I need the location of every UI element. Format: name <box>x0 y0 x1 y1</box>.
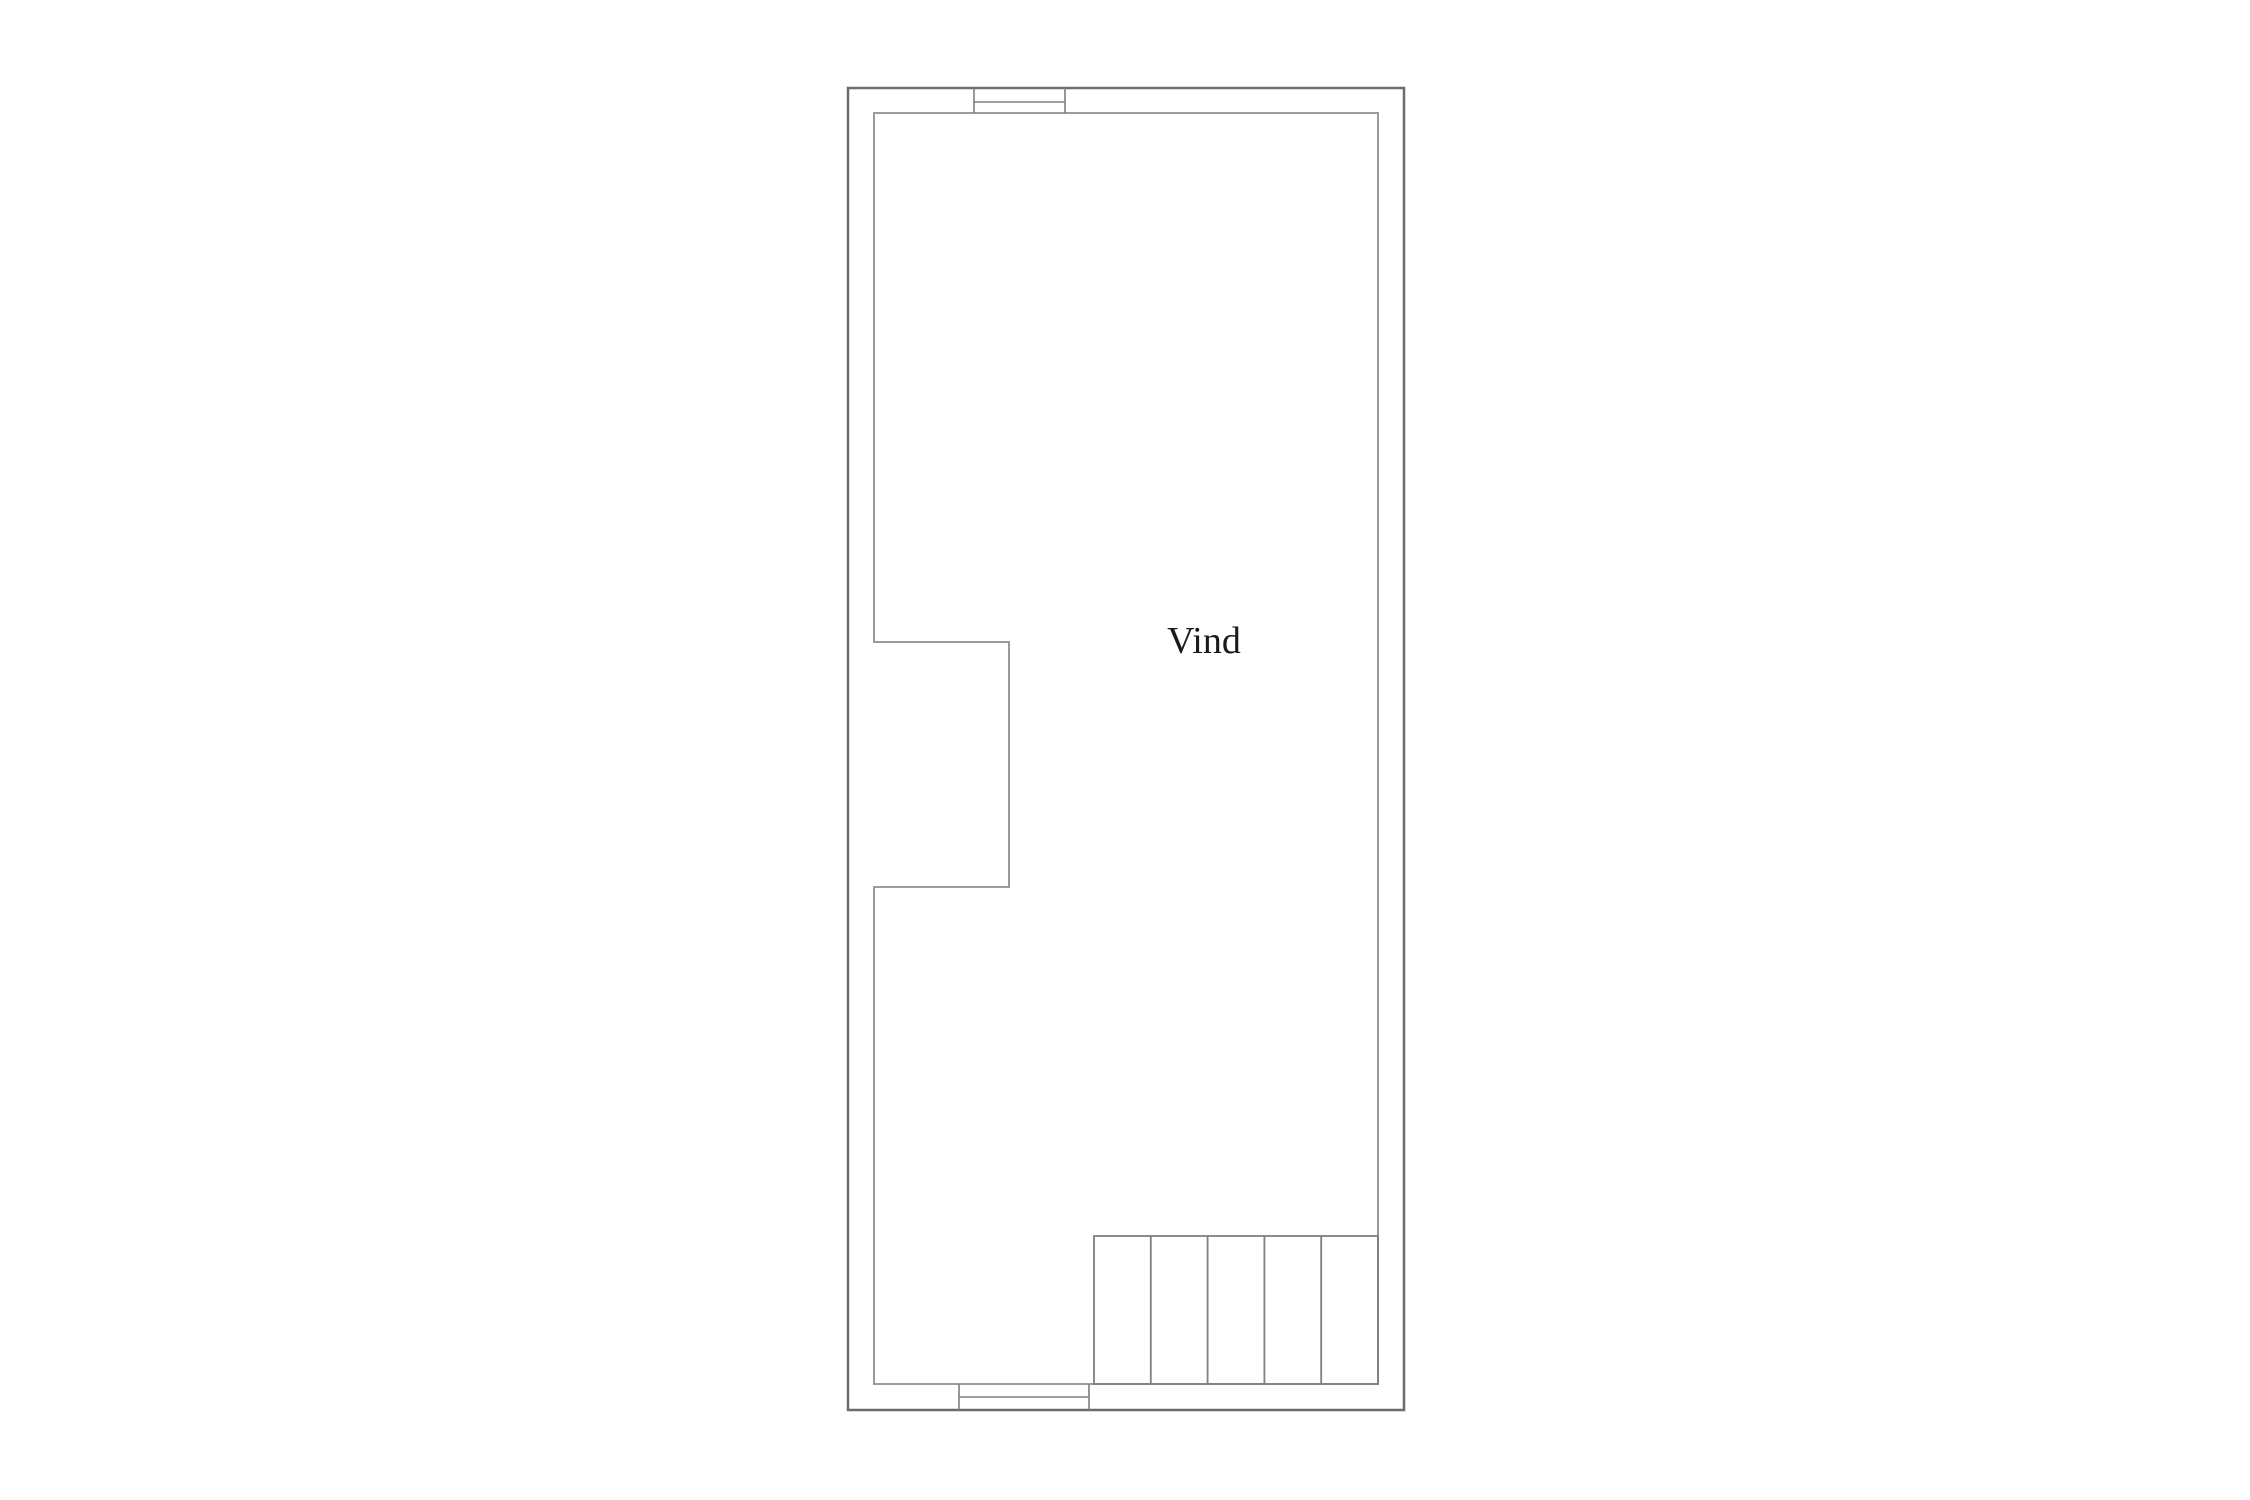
floorplan-page: Vind <box>0 0 2250 1500</box>
room-label: Vind <box>1167 620 1241 662</box>
floorplan-drawing: Vind <box>0 0 2250 1500</box>
canvas-background <box>0 0 2250 1500</box>
